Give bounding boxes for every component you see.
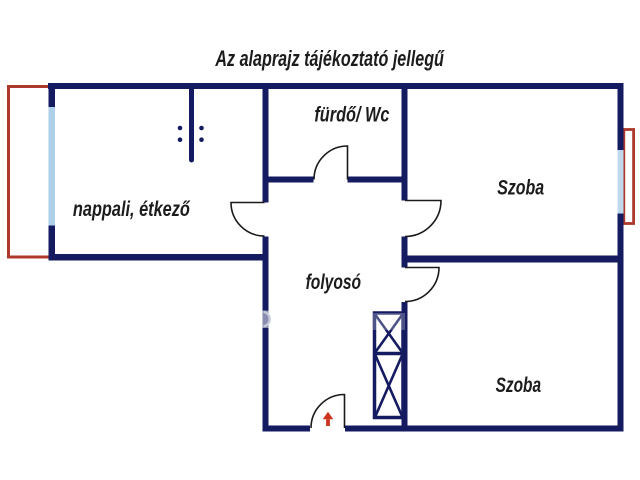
svg-text:Szoba: Szoba (496, 373, 542, 397)
svg-text:fürdő/ Wc: fürdő/ Wc (314, 104, 389, 127)
svg-text:folyosó: folyosó (306, 271, 362, 294)
svg-text:Szoba: Szoba (497, 176, 544, 200)
svg-text:nappali, étkező: nappali, étkező (73, 198, 191, 221)
svg-text:Az alaprajz tájékoztató jelleg: Az alaprajz tájékoztató jellegű (215, 46, 445, 71)
